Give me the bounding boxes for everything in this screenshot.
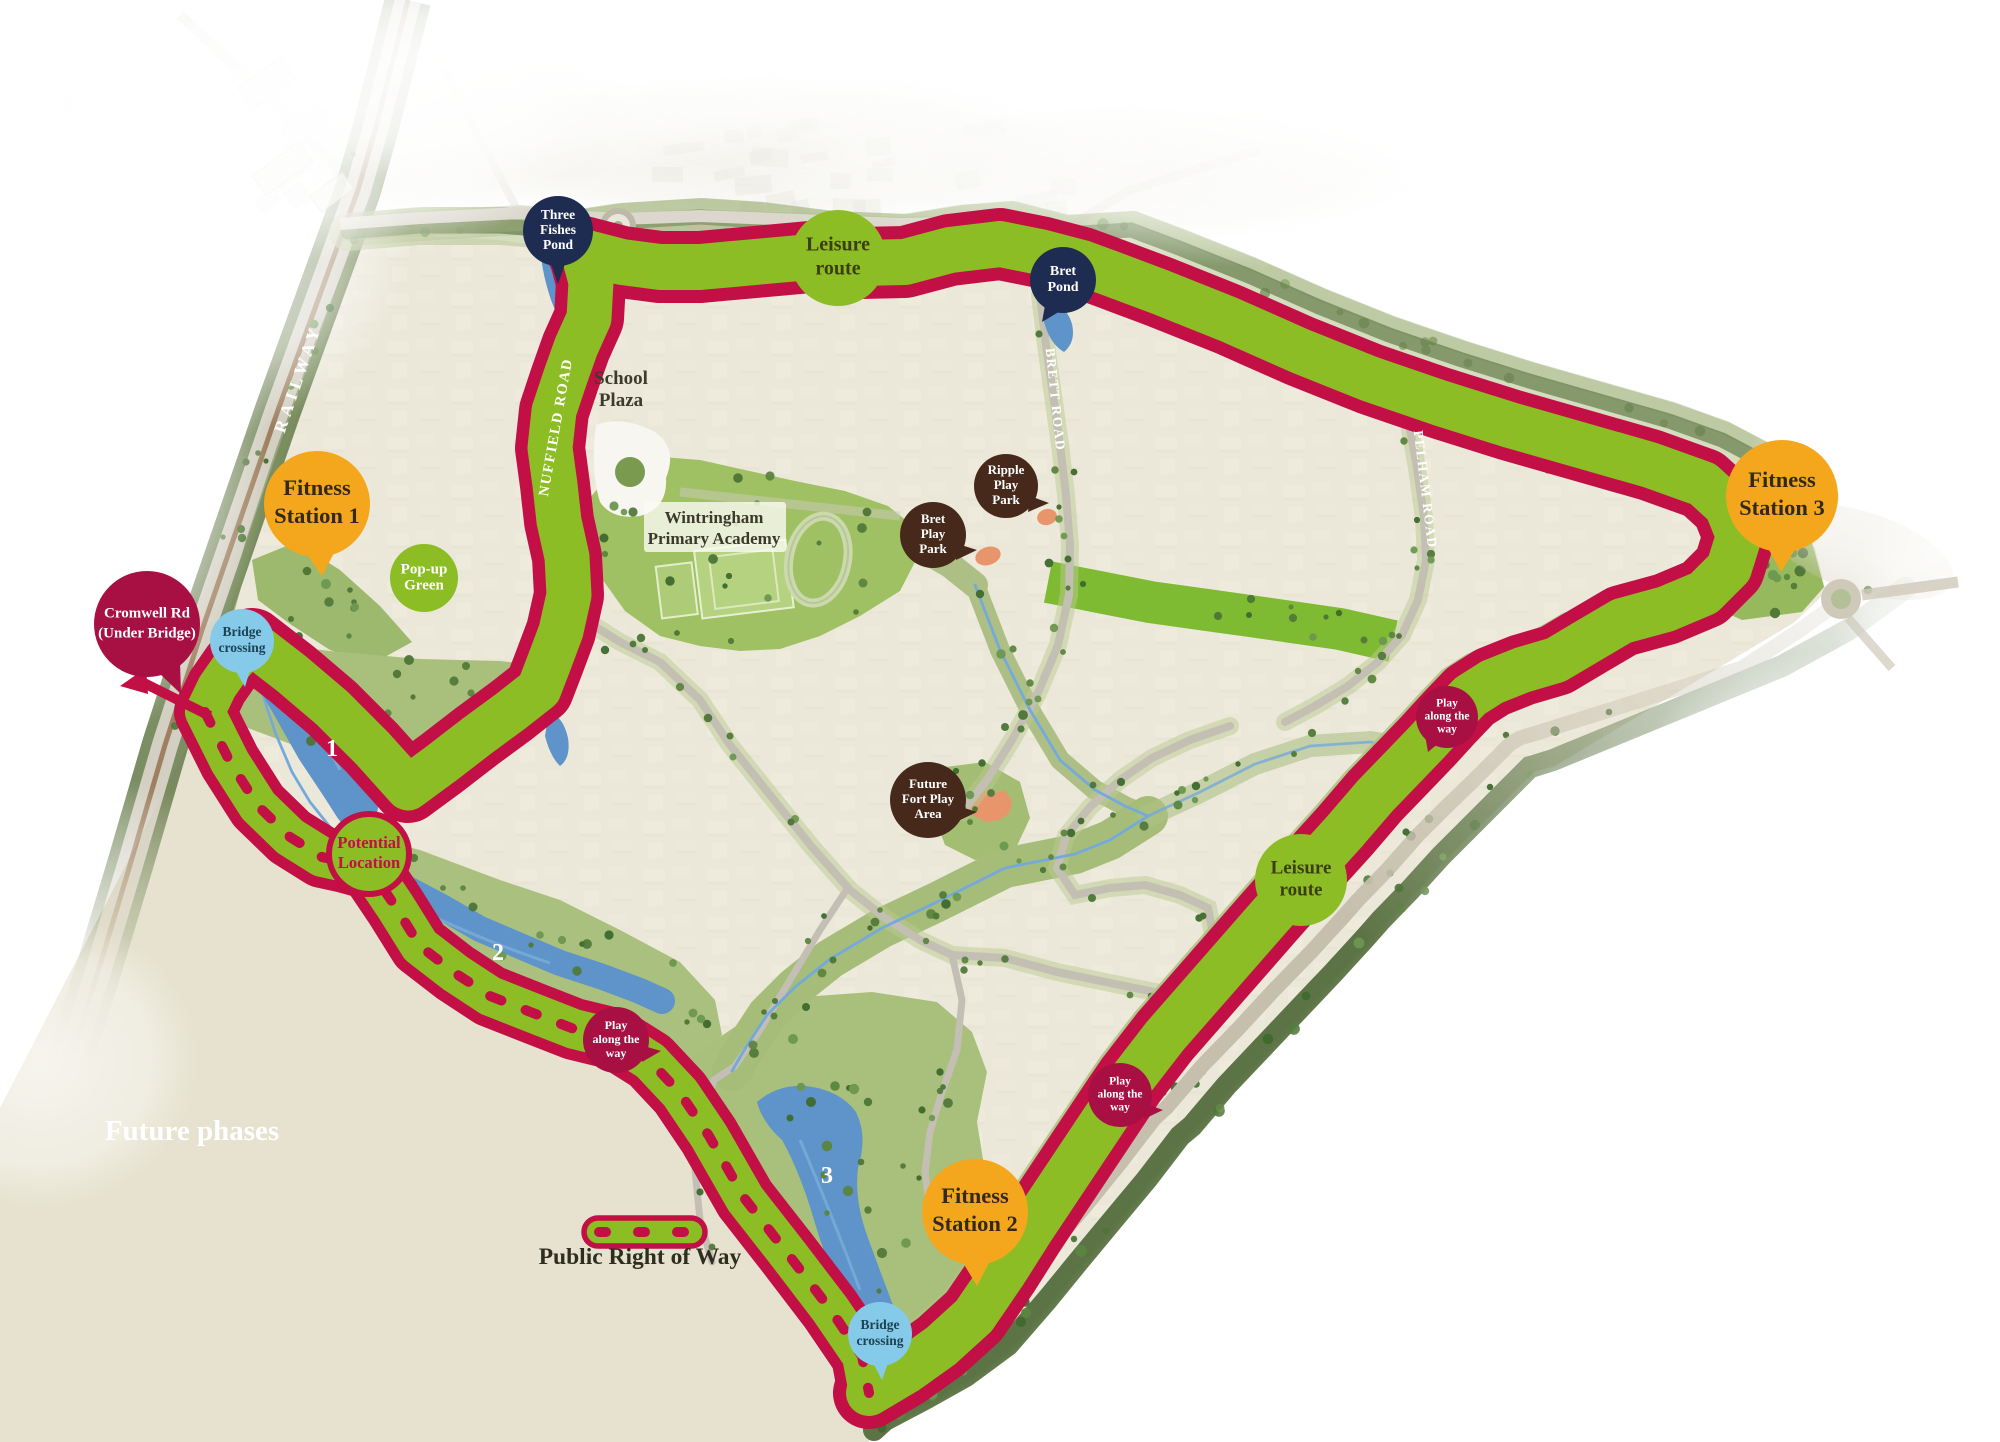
svg-text:Ripple: Ripple [988,462,1025,477]
svg-text:Location: Location [338,853,400,872]
svg-text:Primary Academy: Primary Academy [648,529,781,548]
svg-text:Bridge: Bridge [223,624,262,639]
svg-text:Plaza: Plaza [599,390,644,411]
svg-text:Pond: Pond [543,237,574,252]
svg-text:Wintringham: Wintringham [665,508,764,527]
svg-text:Play: Play [921,526,946,541]
svg-text:Public Right of Way: Public Right of Way [539,1244,742,1270]
svg-text:Fitness: Fitness [941,1183,1009,1208]
svg-text:Bret: Bret [921,511,946,526]
svg-text:Pond: Pond [1047,280,1078,295]
svg-text:Fitness: Fitness [283,475,351,500]
svg-text:Station 1: Station 1 [274,503,360,528]
svg-text:Fitness: Fitness [1748,467,1816,492]
svg-text:Play: Play [1109,1076,1131,1088]
svg-text:Fort Play: Fort Play [902,791,955,806]
svg-text:Future phases: Future phases [105,1115,279,1147]
svg-text:3: 3 [821,1163,833,1189]
svg-text:Potential: Potential [337,833,401,852]
svg-text:Play: Play [994,477,1019,492]
svg-text:Bridge: Bridge [861,1317,900,1332]
svg-text:along the: along the [1097,1089,1142,1101]
svg-text:School: School [594,368,648,389]
svg-text:Cromwell Rd: Cromwell Rd [104,605,191,621]
svg-text:(Under Bridge): (Under Bridge) [98,625,196,641]
svg-text:crossing: crossing [856,1333,903,1348]
svg-text:Station 2: Station 2 [932,1211,1018,1236]
svg-text:Park: Park [992,492,1020,507]
svg-text:along the: along the [1424,711,1469,723]
svg-text:Play: Play [1436,698,1458,710]
svg-text:way: way [1437,724,1457,736]
svg-text:2: 2 [492,940,504,966]
svg-text:way: way [606,1046,627,1060]
svg-text:Bret: Bret [1050,264,1077,279]
svg-text:way: way [1110,1102,1130,1114]
svg-text:Play: Play [605,1018,628,1032]
svg-text:route: route [815,258,860,280]
svg-text:1: 1 [326,736,338,762]
svg-text:Leisure: Leisure [1271,857,1332,878]
svg-text:Station 3: Station 3 [1739,495,1825,520]
svg-text:route: route [1280,879,1323,900]
svg-text:Pop-up: Pop-up [401,561,448,577]
svg-text:Leisure: Leisure [806,234,870,256]
svg-text:Park: Park [919,541,947,556]
svg-text:Fishes: Fishes [540,222,576,237]
svg-text:Area: Area [914,806,942,821]
svg-text:along the: along the [592,1032,640,1046]
svg-text:crossing: crossing [218,640,265,655]
svg-text:Green: Green [404,577,444,593]
svg-text:Future: Future [909,776,947,791]
svg-text:Three: Three [541,207,575,222]
